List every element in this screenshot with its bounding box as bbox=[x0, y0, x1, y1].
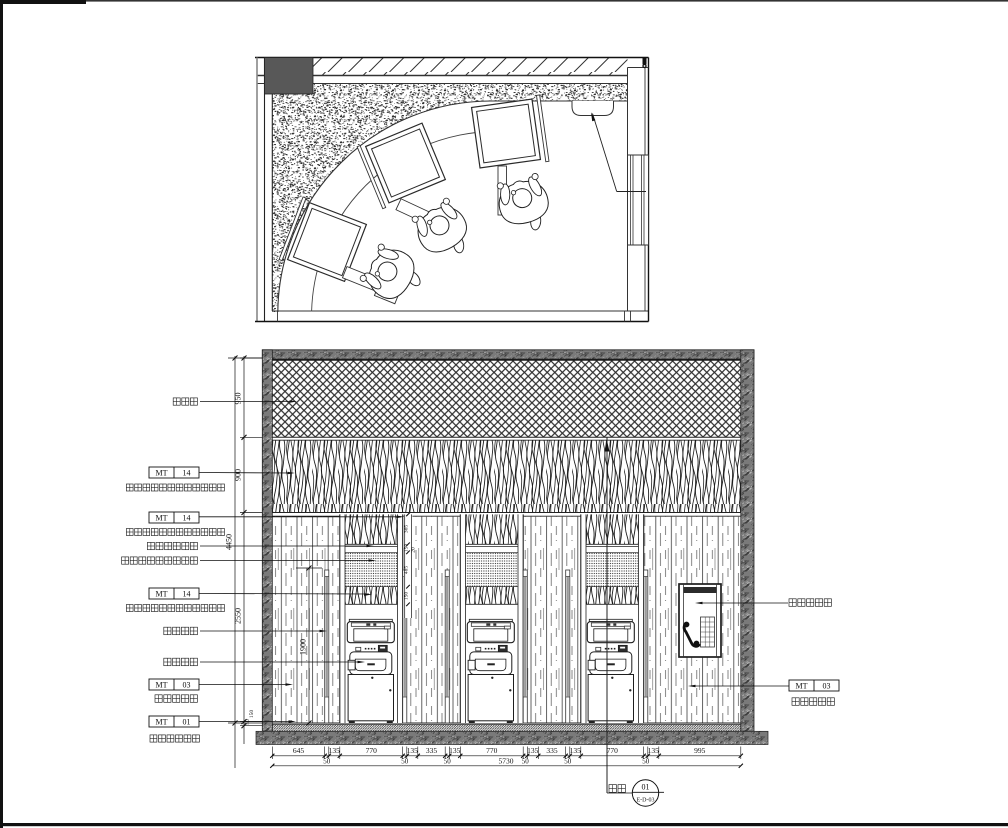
svg-text:485: 485 bbox=[403, 566, 409, 575]
svg-text:MT: MT bbox=[156, 469, 168, 478]
svg-text:150: 150 bbox=[403, 592, 409, 601]
svg-text:50: 50 bbox=[245, 719, 251, 725]
svg-text:03: 03 bbox=[183, 681, 191, 690]
svg-text:50: 50 bbox=[401, 757, 409, 765]
svg-text:900: 900 bbox=[234, 469, 243, 481]
svg-text:14: 14 bbox=[183, 590, 191, 599]
svg-text:E-D-03: E-D-03 bbox=[637, 798, 655, 804]
svg-text:135: 135 bbox=[407, 746, 419, 755]
svg-text:135: 135 bbox=[449, 746, 461, 755]
svg-text:5730: 5730 bbox=[499, 756, 514, 765]
svg-text:MT: MT bbox=[156, 718, 168, 727]
svg-text:MT: MT bbox=[156, 590, 168, 599]
svg-text:135: 135 bbox=[648, 746, 660, 755]
svg-text:135: 135 bbox=[570, 746, 582, 755]
svg-text:770: 770 bbox=[486, 746, 498, 755]
svg-text:995: 995 bbox=[694, 746, 706, 755]
svg-text:135: 135 bbox=[329, 746, 341, 755]
svg-text:MT: MT bbox=[156, 681, 168, 690]
svg-text:335: 335 bbox=[426, 746, 438, 755]
svg-text:645: 645 bbox=[293, 746, 305, 755]
svg-text:MT: MT bbox=[156, 514, 168, 523]
svg-text:50: 50 bbox=[642, 757, 650, 765]
svg-text:50: 50 bbox=[444, 757, 452, 765]
svg-text:50: 50 bbox=[522, 757, 530, 765]
svg-text:14: 14 bbox=[183, 514, 191, 523]
svg-text:770: 770 bbox=[607, 746, 619, 755]
svg-text:4450: 4450 bbox=[225, 534, 234, 550]
svg-text:1900: 1900 bbox=[299, 639, 308, 655]
svg-text:03: 03 bbox=[823, 682, 831, 691]
svg-text:365: 365 bbox=[403, 525, 409, 534]
svg-text:50: 50 bbox=[564, 757, 572, 765]
svg-text:20: 20 bbox=[411, 547, 417, 553]
svg-text:335: 335 bbox=[546, 746, 558, 755]
svg-text:01: 01 bbox=[183, 718, 191, 727]
svg-text:14: 14 bbox=[183, 469, 191, 478]
svg-text:2550: 2550 bbox=[234, 608, 243, 624]
svg-text:50: 50 bbox=[323, 757, 331, 765]
svg-text:950: 950 bbox=[234, 393, 243, 405]
svg-text:770: 770 bbox=[366, 746, 378, 755]
svg-text:01: 01 bbox=[642, 783, 650, 792]
svg-text:135: 135 bbox=[527, 746, 539, 755]
svg-text:MT: MT bbox=[796, 682, 808, 691]
svg-text:150: 150 bbox=[249, 710, 255, 719]
svg-text:150: 150 bbox=[403, 544, 409, 553]
